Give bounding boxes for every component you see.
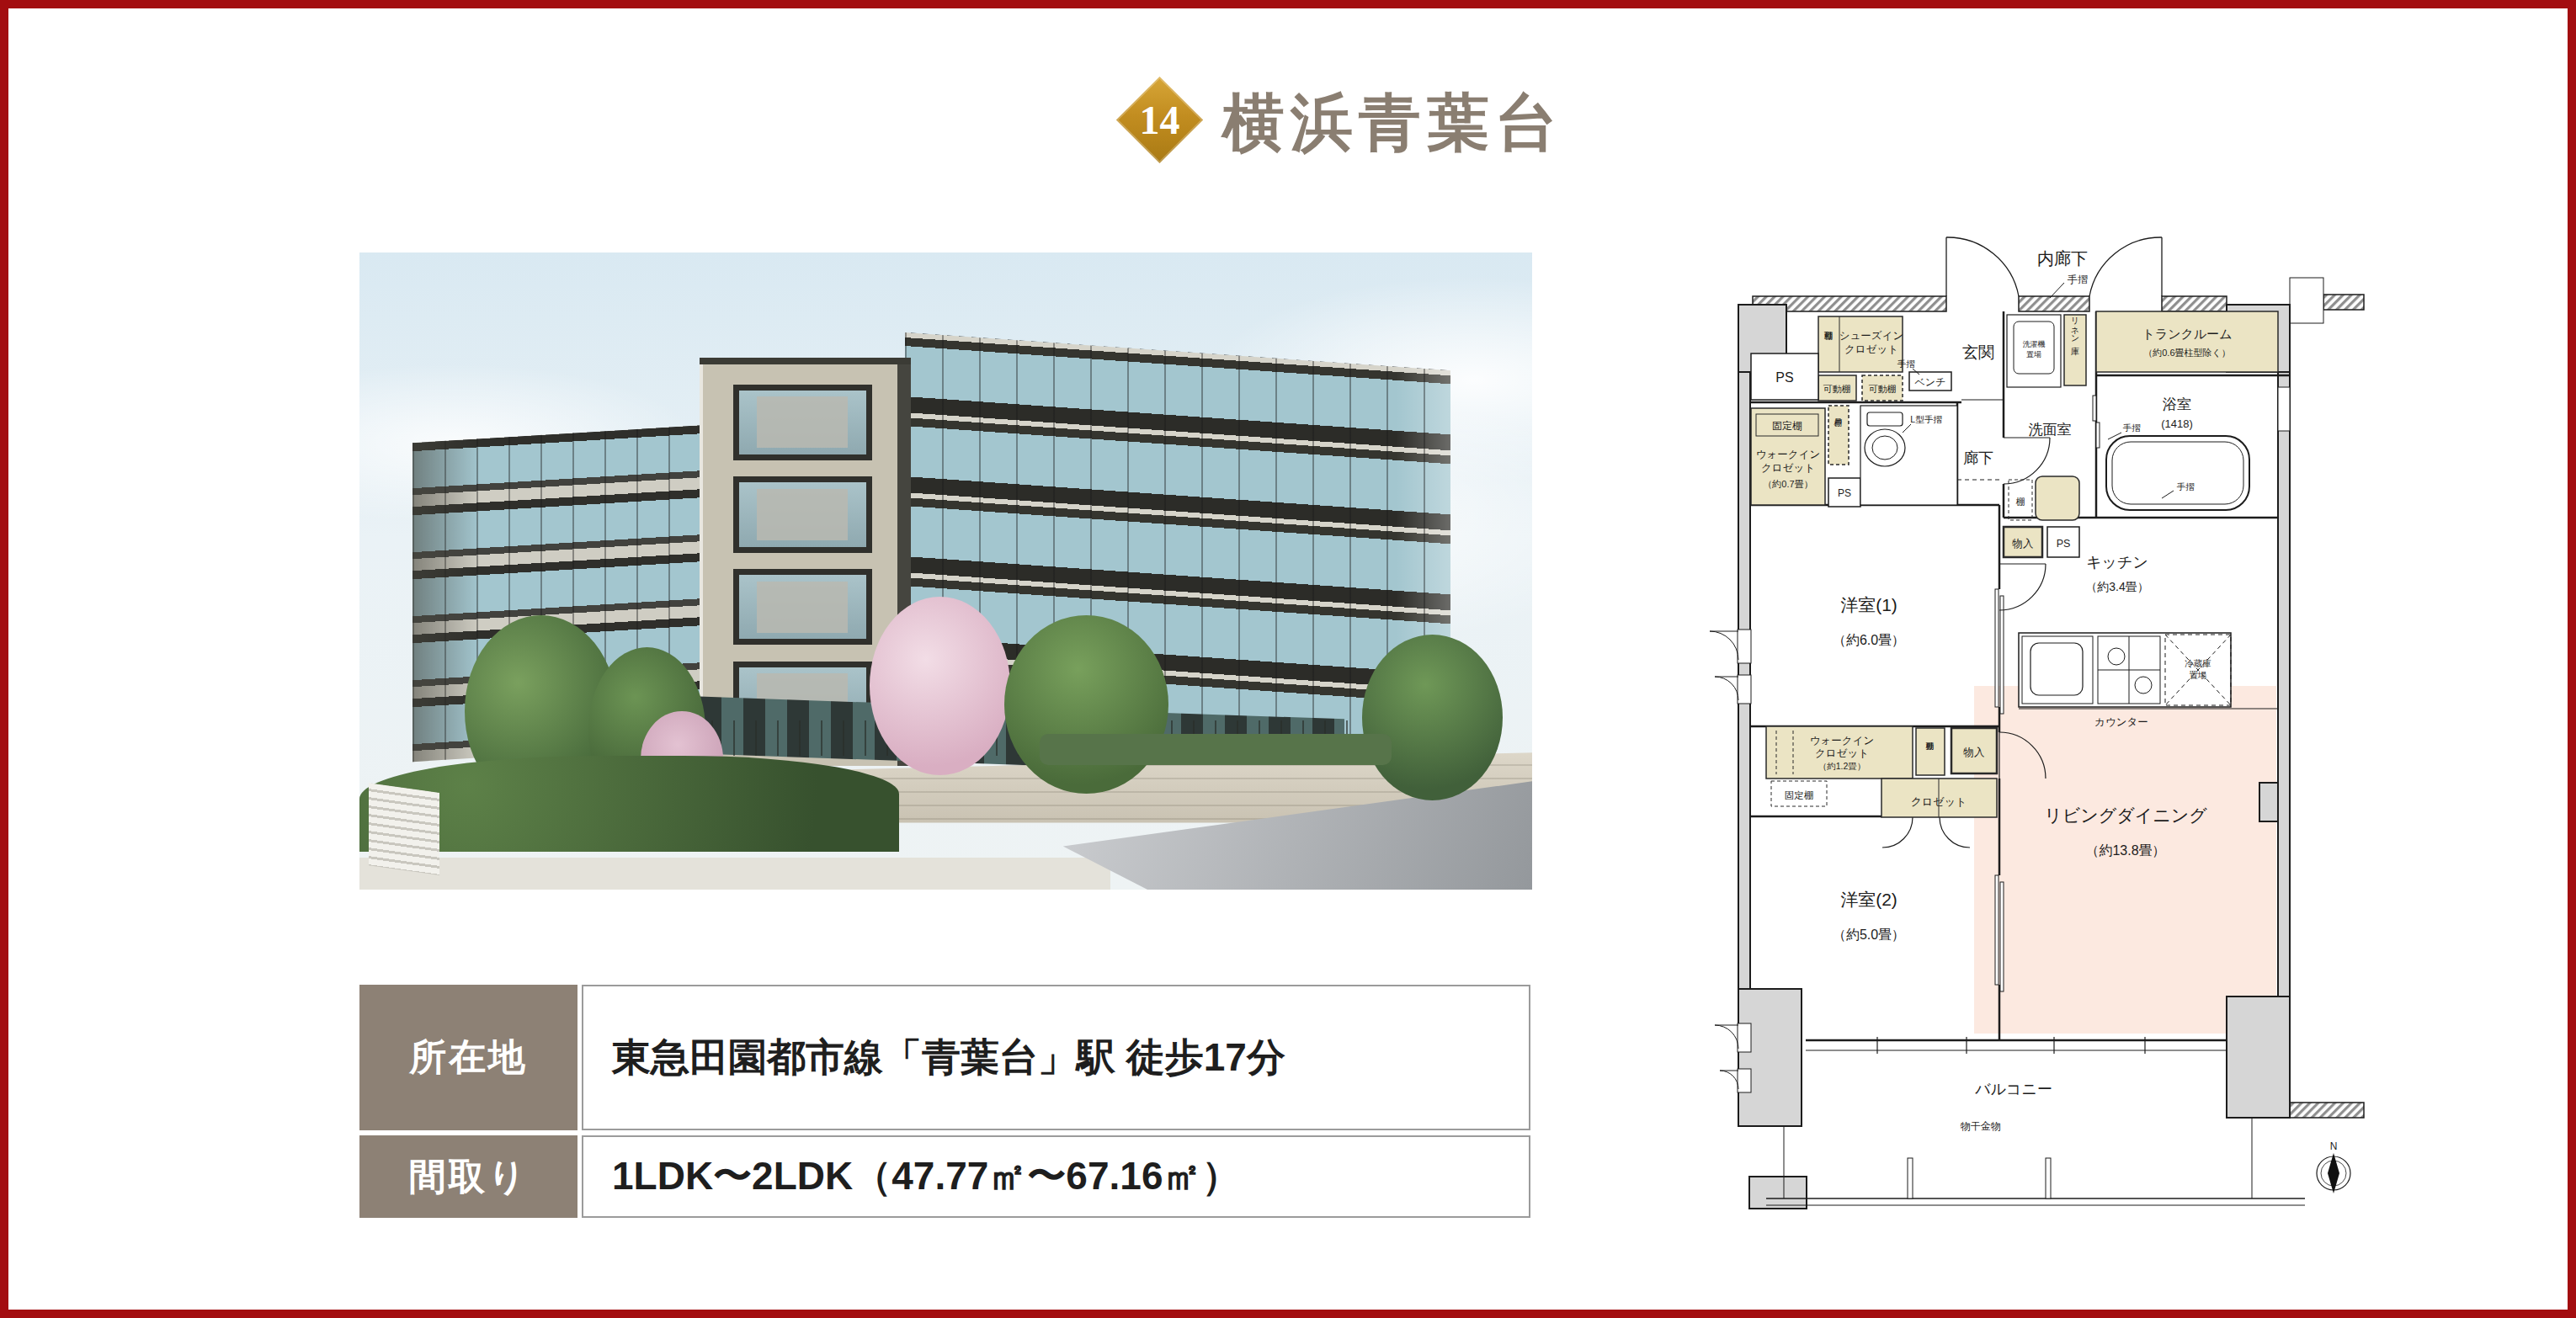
svg-text:（約0.7畳）: （約0.7畳）	[1763, 479, 1812, 489]
label-inner-corridor: 内廊下	[2037, 249, 2088, 268]
label-l-handrail: L型手摺	[1910, 414, 1942, 424]
bathtub-fixture	[2106, 387, 2290, 510]
label-trunk-room: トランクルーム	[2142, 327, 2232, 341]
sidewalk	[359, 858, 1110, 890]
label-shoes-closet: シューズイン	[1839, 330, 1903, 342]
outdoor-stairs	[369, 783, 439, 875]
layout-value: 1LDK〜2LDK（47.77㎡〜67.16㎡）	[582, 1135, 1530, 1218]
svg-text:(1418): (1418)	[2161, 417, 2193, 430]
svg-text:（約1.2畳）: （約1.2畳）	[1818, 761, 1866, 771]
label-storage: 物入	[2012, 538, 2035, 550]
badge-number: 14	[1115, 76, 1204, 164]
label-washroom: 洗面室	[2029, 422, 2072, 438]
svg-text:（約6.0畳）: （約6.0畳）	[1833, 633, 1905, 647]
svg-text:（約13.8畳）: （約13.8畳）	[2085, 843, 2165, 858]
label-compass-north: N	[2330, 1140, 2338, 1152]
building-photo	[359, 252, 1532, 890]
label-living-dining: リビングダイニング	[2044, 805, 2207, 825]
location-label: 所在地	[359, 985, 577, 1130]
svg-text:PS: PS	[2057, 538, 2071, 550]
toilet-fixture	[1860, 406, 1957, 505]
svg-text:（約5.0畳）: （約5.0畳）	[1833, 927, 1905, 942]
svg-text:クロゼット: クロゼット	[1844, 343, 1898, 355]
label-shelf: 棚	[2016, 497, 2025, 507]
tower-window	[733, 385, 871, 460]
svg-text:クロゼット: クロゼット	[1815, 747, 1869, 759]
floor-plan-drawing: 内廊下 手摺 玄関 シューズイン クロゼット 可動棚 可動棚 可動棚 ベンチ 手…	[1700, 227, 2391, 1237]
table-row: 間取り 1LDK〜2LDK（47.77㎡〜67.16㎡）	[359, 1135, 1530, 1218]
svg-text:置場: 置場	[2190, 670, 2207, 680]
label-room2: 洋室(2)	[1840, 890, 1897, 909]
svg-text:手摺: 手摺	[1897, 359, 1916, 369]
svg-text:手摺: 手摺	[2123, 423, 2142, 433]
label-balcony: バルコニー	[1974, 1081, 2052, 1097]
hedge	[1040, 734, 1392, 766]
label-fridge: 冷蔵庫	[2185, 658, 2211, 668]
wall-step	[2290, 278, 2323, 323]
table-row: 所在地 東急田園都市線「青葉台」駅 徒歩17分	[359, 985, 1530, 1130]
svg-text:固定棚: 固定棚	[1785, 790, 1814, 800]
location-value: 東急田園都市線「青葉台」駅 徒歩17分	[582, 985, 1530, 1130]
svg-text:（約3.4畳）: （約3.4畳）	[2085, 580, 2148, 593]
label-kitchen: キッチン	[2086, 554, 2148, 571]
floor-plan: 内廊下 手摺 玄関 シューズイン クロゼット 可動棚 可動棚 可動棚 ベンチ 手…	[1700, 227, 2391, 1237]
label-washer: 洗濯機	[2023, 340, 2046, 348]
tree	[1004, 615, 1168, 794]
label-entrance: 玄関	[1962, 343, 1994, 361]
label-handrail: 手摺	[2068, 274, 2088, 285]
svg-text:物入: 物入	[1963, 747, 1986, 758]
label-wic1: ウォークイン	[1756, 449, 1820, 460]
svg-text:手摺: 手摺	[2177, 481, 2195, 492]
svg-text:可動棚: 可動棚	[1823, 384, 1851, 394]
label-corridor: 廊下	[1963, 449, 1993, 466]
tree	[1362, 635, 1503, 800]
layout-label: 間取り	[359, 1135, 577, 1218]
bushes	[359, 756, 899, 852]
label-wic2: ウォークイン	[1810, 735, 1874, 747]
cherry-blossom-tree	[870, 597, 1010, 775]
label-fixed-shelf: 固定棚	[1772, 420, 1802, 432]
label-bench: ベンチ	[1915, 376, 1946, 388]
svg-text:可動棚: 可動棚	[1869, 384, 1897, 394]
compass-icon	[2317, 1153, 2350, 1193]
tower-window	[733, 476, 871, 552]
label-counter: カウンター	[2094, 716, 2148, 728]
balcony-structure	[1766, 1118, 2305, 1205]
page-title: 横浜青葉台	[1222, 82, 1563, 166]
label-bath: 浴室	[2163, 396, 2191, 412]
svg-text:クロゼット: クロゼット	[1761, 462, 1815, 474]
svg-text:（約0.6畳柱型除く）: （約0.6畳柱型除く）	[2143, 348, 2231, 358]
label-closet: クロゼット	[1911, 795, 1967, 808]
svg-text:置場: 置場	[2026, 350, 2041, 359]
brochure-page: 14 横浜青葉台 所在地 東急田園都市線「青葉台」駅 徒歩17分	[0, 0, 2576, 1318]
label-ps: PS	[1775, 370, 1793, 385]
label-room1: 洋室(1)	[1840, 595, 1897, 614]
tower-window	[733, 569, 871, 645]
label-drying-hardware: 物干金物	[1960, 1120, 2001, 1132]
property-info-table: 所在地 東急田園都市線「青葉台」駅 徒歩17分 間取り 1LDK〜2LDK（47…	[359, 985, 1530, 1218]
svg-text:PS: PS	[1838, 487, 1851, 499]
living-dining-area	[1974, 686, 2276, 1034]
